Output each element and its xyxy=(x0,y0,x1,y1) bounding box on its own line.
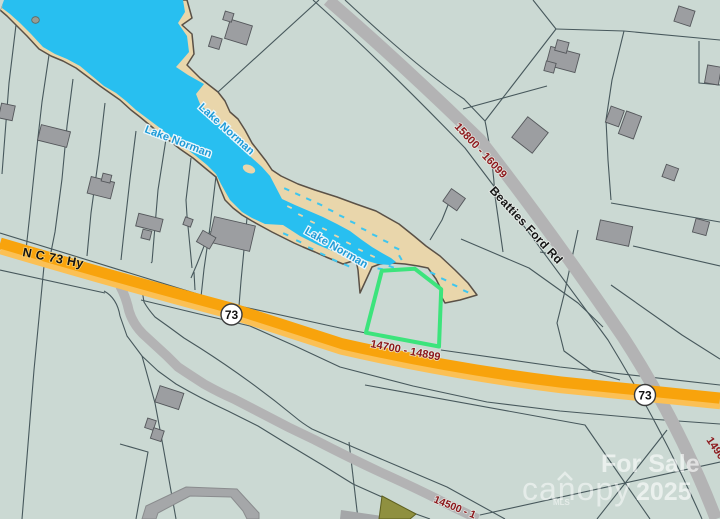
svg-text:73: 73 xyxy=(638,389,652,403)
svg-text:2025: 2025 xyxy=(636,478,692,506)
svg-text:MLS: MLS xyxy=(553,498,571,507)
svg-text:73: 73 xyxy=(225,308,239,322)
svg-text:canopy: canopy xyxy=(522,471,631,507)
